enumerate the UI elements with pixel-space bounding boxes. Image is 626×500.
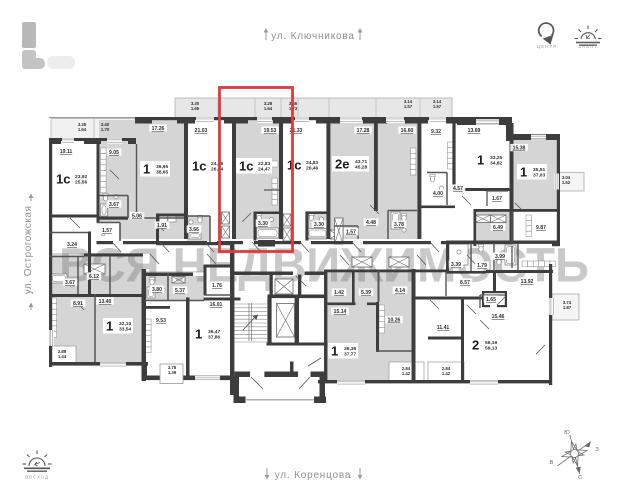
svg-text:36,47: 36,47 bbox=[208, 329, 221, 335]
svg-text:3.30: 3.30 bbox=[314, 222, 324, 228]
svg-text:24,83: 24,83 bbox=[306, 160, 319, 166]
svg-text:1: 1 bbox=[477, 153, 484, 168]
svg-text:33,25: 33,25 bbox=[490, 155, 503, 161]
svg-text:37,03: 37,03 bbox=[533, 173, 546, 179]
svg-text:36,95: 36,95 bbox=[156, 164, 169, 170]
svg-text:32,10: 32,10 bbox=[119, 321, 132, 327]
svg-text:34,82: 34,82 bbox=[490, 161, 503, 167]
svg-text:19.53: 19.53 bbox=[264, 128, 277, 134]
svg-text:9.32: 9.32 bbox=[431, 129, 441, 135]
svg-text:45,28: 45,28 bbox=[355, 165, 368, 171]
svg-text:17.28: 17.28 bbox=[357, 128, 370, 134]
svg-text:9.53: 9.53 bbox=[156, 318, 166, 324]
svg-text:3.24: 3.24 bbox=[67, 242, 77, 248]
svg-text:ул. Ключникова: ул. Ключникова bbox=[271, 31, 354, 42]
svg-text:9.87: 9.87 bbox=[536, 225, 546, 231]
svg-text:1.52: 1.52 bbox=[562, 180, 571, 185]
svg-text:24,47: 24,47 bbox=[258, 167, 271, 173]
svg-text:35,51: 35,51 bbox=[533, 167, 546, 173]
svg-text:26,46: 26,46 bbox=[306, 166, 319, 172]
svg-text:37,77: 37,77 bbox=[344, 352, 357, 358]
svg-text:1с: 1с bbox=[287, 158, 301, 173]
svg-text:16.01: 16.01 bbox=[210, 302, 223, 308]
svg-text:33,54: 33,54 bbox=[119, 327, 132, 333]
svg-text:3.78: 3.78 bbox=[394, 222, 404, 228]
svg-text:ул. Острогожская: ул. Острогожская bbox=[23, 206, 34, 295]
svg-text:43,71: 43,71 bbox=[355, 159, 368, 165]
svg-text:1: 1 bbox=[106, 319, 113, 334]
svg-text:16.60: 16.60 bbox=[401, 128, 414, 134]
svg-text:3.67: 3.67 bbox=[65, 280, 75, 286]
svg-text:ул. Коренцова: ул. Коренцова bbox=[275, 470, 352, 481]
svg-text:3.39: 3.39 bbox=[451, 262, 461, 268]
svg-text:1.79: 1.79 bbox=[477, 263, 487, 269]
svg-text:56,19: 56,19 bbox=[485, 340, 498, 346]
svg-text:1с: 1с bbox=[192, 159, 206, 174]
svg-text:5.37: 5.37 bbox=[175, 288, 185, 294]
svg-text:1.76: 1.76 bbox=[212, 283, 222, 289]
svg-text:24,69: 24,69 bbox=[211, 161, 224, 167]
svg-text:13.69: 13.69 bbox=[468, 128, 481, 134]
svg-text:1.91: 1.91 bbox=[157, 223, 167, 229]
svg-text:1: 1 bbox=[520, 165, 527, 180]
svg-text:ВОСХОД: ВОСХОД bbox=[25, 475, 49, 480]
svg-text:1с: 1с bbox=[56, 172, 70, 187]
svg-text:1: 1 bbox=[331, 344, 338, 359]
svg-text:15.14: 15.14 bbox=[334, 309, 347, 315]
svg-text:13.92: 13.92 bbox=[521, 279, 534, 285]
svg-text:1.67: 1.67 bbox=[492, 196, 502, 202]
svg-text:1.42: 1.42 bbox=[442, 371, 451, 376]
svg-text:1: 1 bbox=[195, 327, 202, 342]
svg-text:4.48: 4.48 bbox=[366, 220, 376, 226]
svg-text:25,56: 25,56 bbox=[75, 180, 88, 186]
svg-text:19.11: 19.11 bbox=[60, 149, 73, 155]
svg-text:1.64: 1.64 bbox=[264, 106, 273, 111]
svg-text:11.41: 11.41 bbox=[437, 325, 450, 331]
svg-text:3.66: 3.66 bbox=[189, 227, 199, 233]
svg-text:22,83: 22,83 bbox=[258, 161, 271, 167]
svg-text:1.42: 1.42 bbox=[334, 290, 344, 296]
svg-text:8.57: 8.57 bbox=[460, 280, 470, 286]
svg-text:4.57: 4.57 bbox=[453, 186, 463, 192]
svg-text:1.42: 1.42 bbox=[402, 371, 411, 376]
svg-text:С: С bbox=[578, 475, 582, 481]
svg-text:15.46: 15.46 bbox=[492, 314, 505, 320]
svg-text:3.99: 3.99 bbox=[495, 254, 505, 260]
svg-text:1.64: 1.64 bbox=[78, 127, 87, 132]
svg-text:36,35: 36,35 bbox=[344, 346, 357, 352]
svg-text:1.39: 1.39 bbox=[168, 370, 177, 375]
svg-text:Ю: Ю bbox=[564, 430, 570, 436]
svg-text:1.57: 1.57 bbox=[346, 230, 356, 236]
svg-text:5.06: 5.06 bbox=[132, 214, 142, 220]
svg-text:1.57: 1.57 bbox=[404, 104, 413, 109]
svg-text:ЗАКАТ: ЗАКАТ bbox=[578, 44, 597, 49]
svg-text:1.87: 1.87 bbox=[563, 305, 572, 310]
svg-text:1.65: 1.65 bbox=[486, 297, 496, 303]
svg-text:23,92: 23,92 bbox=[75, 174, 88, 180]
svg-text:3.80: 3.80 bbox=[152, 287, 162, 293]
svg-text:4.00: 4.00 bbox=[433, 191, 443, 197]
svg-text:1.65: 1.65 bbox=[191, 106, 200, 111]
svg-text:1.44: 1.44 bbox=[58, 354, 67, 359]
svg-text:2е: 2е bbox=[335, 157, 349, 172]
svg-text:1.57: 1.57 bbox=[102, 228, 112, 234]
svg-text:6.12: 6.12 bbox=[89, 274, 99, 280]
svg-text:37,86: 37,86 bbox=[208, 335, 221, 341]
svg-text:2: 2 bbox=[472, 338, 479, 353]
svg-text:17.26: 17.26 bbox=[152, 126, 165, 132]
svg-text:1с: 1с bbox=[239, 159, 253, 174]
svg-text:13.40: 13.40 bbox=[99, 299, 112, 305]
svg-text:21.03: 21.03 bbox=[195, 128, 208, 134]
svg-text:3.67: 3.67 bbox=[109, 202, 119, 208]
svg-text:3.30: 3.30 bbox=[258, 221, 268, 227]
svg-text:15.38: 15.38 bbox=[513, 146, 526, 152]
svg-text:ЦЕНТР: ЦЕНТР bbox=[537, 44, 558, 49]
svg-text:10.26: 10.26 bbox=[388, 318, 401, 324]
svg-text:6.49: 6.49 bbox=[493, 225, 503, 231]
svg-text:4.14: 4.14 bbox=[395, 288, 405, 294]
svg-text:5.39: 5.39 bbox=[361, 290, 371, 296]
svg-text:8.91: 8.91 bbox=[73, 301, 83, 307]
svg-text:1: 1 bbox=[143, 162, 150, 177]
svg-text:38,65: 38,65 bbox=[156, 170, 169, 176]
svg-text:9.05: 9.05 bbox=[109, 150, 119, 156]
svg-text:В: В bbox=[550, 460, 554, 466]
svg-text:59,13: 59,13 bbox=[485, 346, 498, 352]
svg-text:26,64: 26,64 bbox=[211, 167, 224, 173]
svg-text:1.57: 1.57 bbox=[433, 104, 442, 109]
svg-text:1.70: 1.70 bbox=[101, 127, 110, 132]
